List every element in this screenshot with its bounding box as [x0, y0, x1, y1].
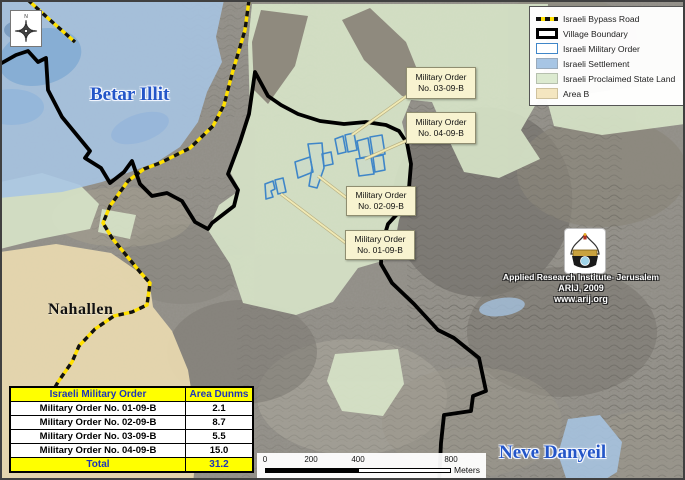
callout-line: Military Order — [407, 72, 475, 83]
scale-tick-800: 800 — [444, 455, 457, 464]
table-cell-area: 5.5 — [186, 430, 253, 444]
credit-institute: Applied Research Institute- Jerusalem — [490, 272, 672, 282]
area-b-swatch — [536, 88, 558, 99]
table-cell-order: Military Order No. 02-09-B — [11, 416, 186, 430]
callout-line: No. 01-09-B — [346, 245, 414, 256]
table-row: Military Order No. 02-09-B 8.7 — [11, 416, 253, 430]
callout-military-order-03: Military Order No. 03-09-B — [406, 67, 476, 99]
scale-bar: 0 200 400 800 Meters — [257, 453, 486, 478]
scale-tick-200: 200 — [304, 455, 317, 464]
legend-label: Israeli Military Order — [563, 44, 640, 54]
credit-website: www.arij.org — [490, 294, 672, 304]
legend-item-settlement: Israeli Settlement — [536, 56, 684, 71]
scale-unit-label: Meters — [454, 465, 480, 475]
table-cell-order: Military Order No. 01-09-B — [11, 402, 186, 416]
bypass-road-swatch — [536, 17, 558, 21]
table-row: Military Order No. 04-09-B 15.0 — [11, 444, 253, 458]
table-cell-area: 8.7 — [186, 416, 253, 430]
arij-logo — [564, 228, 606, 274]
table-cell-order: Military Order No. 04-09-B — [11, 444, 186, 458]
table-cell-order: Military Order No. 03-09-B — [11, 430, 186, 444]
table-total-row: Total 31.2 — [11, 458, 253, 472]
table-cell-area: 15.0 — [186, 444, 253, 458]
callout-line: No. 04-09-B — [407, 128, 475, 139]
scale-tick-400: 400 — [351, 455, 364, 464]
table-row: Military Order No. 03-09-B 5.5 — [11, 430, 253, 444]
legend-label: Israeli Proclaimed State Land — [563, 74, 675, 84]
callout-military-order-01: Military Order No. 01-09-B — [345, 230, 415, 260]
table-header-row: Israeli Military Order Area Dunms — [11, 388, 253, 402]
credit-year: ARIJ, 2009 — [490, 283, 672, 293]
callout-line: No. 03-09-B — [407, 83, 475, 94]
callout-military-order-04: Military Order No. 04-09-B — [406, 112, 476, 144]
table-total-label: Total — [11, 458, 186, 472]
legend-label: Israeli Bypass Road — [563, 14, 639, 24]
legend-item-bypass-road: Israeli Bypass Road — [536, 11, 684, 26]
legend-item-area-b: Area B — [536, 86, 684, 101]
scale-tick-0: 0 — [263, 455, 267, 464]
military-order-swatch — [536, 43, 558, 54]
legend-item-military-order: Israeli Military Order — [536, 41, 684, 56]
military-order-table: Israeli Military Order Area Dunms Milita… — [10, 387, 253, 472]
callout-line: Military Order — [407, 117, 475, 128]
settlement-swatch — [536, 58, 558, 69]
callout-line: Military Order — [347, 190, 415, 201]
callout-line: Military Order — [346, 234, 414, 245]
credit-block: Applied Research Institute- Jerusalem AR… — [490, 272, 672, 304]
table-row: Military Order No. 01-09-B 2.1 — [11, 402, 253, 416]
legend-label: Israeli Settlement — [563, 59, 629, 69]
scale-bar-segment-empty — [358, 468, 451, 473]
legend: Israeli Bypass Road Village Boundary Isr… — [529, 6, 685, 106]
legend-item-state-land: Israeli Proclaimed State Land — [536, 71, 684, 86]
label-betar-illit: Betar Illit — [90, 84, 169, 106]
callout-military-order-02: Military Order No. 02-09-B — [346, 186, 416, 216]
map-document: Betar Illit Nahallen Neve Danyeil Milita… — [0, 0, 685, 480]
label-nahallen: Nahallen — [48, 301, 113, 319]
legend-label: Village Boundary — [563, 29, 628, 39]
compass-star-icon — [14, 19, 38, 43]
legend-item-village-boundary: Village Boundary — [536, 26, 684, 41]
legend-label: Area B — [563, 89, 589, 99]
village-boundary-swatch — [536, 28, 558, 39]
scale-bar-segment-filled — [265, 468, 358, 473]
table-total-value: 31.2 — [186, 458, 253, 472]
state-land-swatch — [536, 73, 558, 84]
table-header-area: Area Dunms — [186, 388, 253, 402]
compass-rose: N — [10, 10, 42, 47]
table-header-order: Israeli Military Order — [11, 388, 186, 402]
callout-line: No. 02-09-B — [347, 201, 415, 212]
table-cell-area: 2.1 — [186, 402, 253, 416]
arij-emblem-icon — [568, 232, 602, 270]
label-neve-danyeil: Neve Danyeil — [499, 442, 606, 464]
